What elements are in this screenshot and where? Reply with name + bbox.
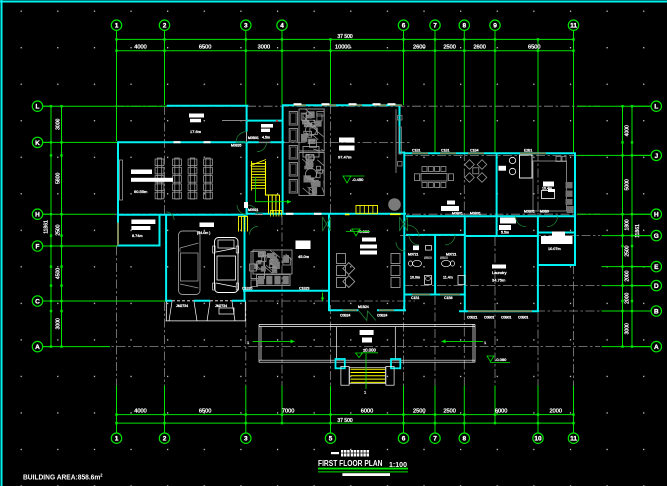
svg-text:11.4m: 11.4m [443, 276, 453, 280]
svg-text:M0921: M0921 [248, 208, 258, 212]
svg-text:10.07m: 10.07m [548, 247, 561, 251]
svg-text:E2B1: E2B1 [524, 149, 532, 153]
svg-text:5: 5 [329, 436, 333, 443]
svg-text:C1B8: C1B8 [444, 296, 453, 300]
svg-text:Ø800: Ø800 [440, 256, 448, 260]
svg-text:4000: 4000 [625, 125, 631, 136]
svg-text:1800: 1800 [625, 219, 631, 230]
svg-text:2: 2 [163, 436, 167, 443]
svg-text:9: 9 [493, 23, 497, 30]
svg-text:7000: 7000 [282, 408, 294, 414]
svg-text:±0.000: ±0.000 [363, 348, 376, 353]
svg-text:H: H [35, 212, 40, 219]
svg-text:D: D [654, 283, 659, 290]
svg-text:2000: 2000 [625, 270, 631, 281]
svg-text:3: 3 [244, 436, 248, 443]
svg-text:C1B1: C1B1 [412, 149, 421, 153]
svg-text:(54.0m ): (54.0m ) [197, 231, 210, 235]
svg-text:34.75m: 34.75m [492, 278, 506, 283]
svg-text:BUILDING AREA:858.6m²: BUILDING AREA:858.6m² [23, 473, 103, 482]
svg-text:B: B [654, 308, 659, 315]
svg-text:97.47m: 97.47m [338, 155, 352, 160]
svg-text:J: J [654, 153, 658, 160]
svg-text:E: E [654, 264, 659, 271]
svg-text:K: K [35, 140, 40, 147]
svg-text:-0.450: -0.450 [352, 177, 364, 182]
svg-text:10.4m: 10.4m [542, 187, 552, 191]
svg-text:5800: 5800 [56, 173, 62, 184]
svg-text:10: 10 [534, 436, 542, 443]
svg-text:JM2734: JM2734 [176, 304, 188, 308]
svg-text:8: 8 [462, 23, 466, 30]
svg-text:6: 6 [402, 436, 406, 443]
svg-text:C0B01: C0B01 [484, 316, 494, 320]
svg-text:11861: 11861 [44, 220, 50, 234]
svg-text:6000: 6000 [495, 408, 507, 414]
svg-text:A: A [35, 344, 40, 351]
svg-text:M0B01: M0B01 [248, 136, 259, 140]
svg-text:C0B01: C0B01 [518, 316, 528, 320]
svg-text:C1B20: C1B20 [242, 286, 252, 290]
svg-text:8.74m: 8.74m [132, 234, 143, 238]
svg-text:7: 7 [433, 436, 437, 443]
svg-text:M0B01: M0B01 [470, 212, 481, 216]
svg-text:A: A [654, 344, 659, 351]
svg-text:M0826: M0826 [231, 144, 241, 148]
svg-text:C0B24: C0B24 [377, 314, 387, 318]
svg-text:11: 11 [570, 436, 577, 443]
svg-text:4000: 4000 [134, 44, 146, 50]
svg-text:3000: 3000 [258, 44, 270, 50]
svg-text:L: L [36, 104, 40, 111]
svg-text:2500: 2500 [443, 408, 455, 414]
svg-text:H: H [654, 212, 659, 219]
svg-text:6500: 6500 [199, 408, 211, 414]
svg-text:M1B24: M1B24 [358, 305, 369, 309]
svg-text:C1B4: C1B4 [470, 149, 479, 153]
svg-text:8: 8 [462, 436, 466, 443]
svg-text:3000: 3000 [56, 318, 62, 329]
svg-text:C0B21: C0B21 [467, 316, 477, 320]
svg-text:-0.080: -0.080 [495, 357, 507, 362]
svg-text:F: F [36, 243, 40, 250]
svg-text:10000: 10000 [335, 44, 351, 50]
svg-text:2500: 2500 [56, 224, 62, 235]
svg-text:C1B1: C1B1 [441, 149, 450, 153]
svg-text:2500: 2500 [413, 408, 425, 414]
svg-text:5.5m: 5.5m [501, 231, 509, 235]
svg-text:3000: 3000 [56, 119, 62, 130]
svg-text:1: 1 [115, 23, 119, 30]
svg-text:JM2734: JM2734 [215, 304, 227, 308]
svg-text:Laundry: Laundry [492, 270, 506, 275]
svg-text:60.55m: 60.55m [134, 189, 148, 194]
svg-text:2500: 2500 [443, 44, 455, 50]
svg-text:4.5m: 4.5m [262, 136, 270, 140]
svg-text:M0721: M0721 [408, 253, 418, 257]
svg-text:7: 7 [433, 23, 437, 30]
svg-text:2: 2 [163, 23, 167, 30]
svg-text:4: 4 [280, 23, 284, 30]
svg-text:L: L [654, 104, 658, 111]
svg-text:C0B24: C0B24 [340, 314, 350, 318]
svg-text:10.0m: 10.0m [410, 276, 420, 280]
svg-text:6500: 6500 [528, 44, 540, 50]
svg-text:1: 1 [115, 436, 119, 443]
svg-text:C0B01: C0B01 [501, 316, 511, 320]
svg-text:45.0m: 45.0m [298, 254, 310, 259]
svg-text:2000: 2000 [625, 293, 631, 304]
svg-text:6500: 6500 [199, 44, 211, 50]
svg-text:G: G [654, 233, 659, 240]
svg-text:M0B01: M0B01 [452, 212, 463, 216]
svg-text:11: 11 [570, 23, 577, 30]
svg-text:6: 6 [402, 23, 406, 30]
svg-text:2500: 2500 [625, 245, 631, 256]
svg-text:6000: 6000 [361, 408, 373, 414]
svg-text:5000: 5000 [625, 179, 631, 190]
svg-text:FIRST FLOOR PLAN: FIRST FLOOR PLAN [318, 459, 383, 468]
svg-text:Ø800: Ø800 [424, 256, 432, 260]
svg-text:37 500: 37 500 [337, 34, 353, 40]
svg-text:37 500: 37 500 [337, 418, 353, 424]
svg-text:4500: 4500 [56, 268, 62, 279]
svg-text:2600: 2600 [413, 44, 425, 50]
svg-text:17.6m: 17.6m [190, 129, 202, 134]
svg-text:M0B0: M0B0 [540, 210, 549, 214]
svg-text:4000: 4000 [134, 408, 146, 414]
svg-text:2000: 2000 [550, 408, 562, 414]
svg-text:M0B01: M0B01 [524, 210, 535, 214]
svg-text:3: 3 [244, 23, 248, 30]
svg-text:2600: 2600 [473, 44, 485, 50]
svg-text:C: C [35, 298, 40, 305]
svg-text:C1B1: C1B1 [411, 296, 420, 300]
svg-text:3000: 3000 [625, 323, 631, 334]
svg-text:C1B23: C1B23 [299, 286, 309, 290]
